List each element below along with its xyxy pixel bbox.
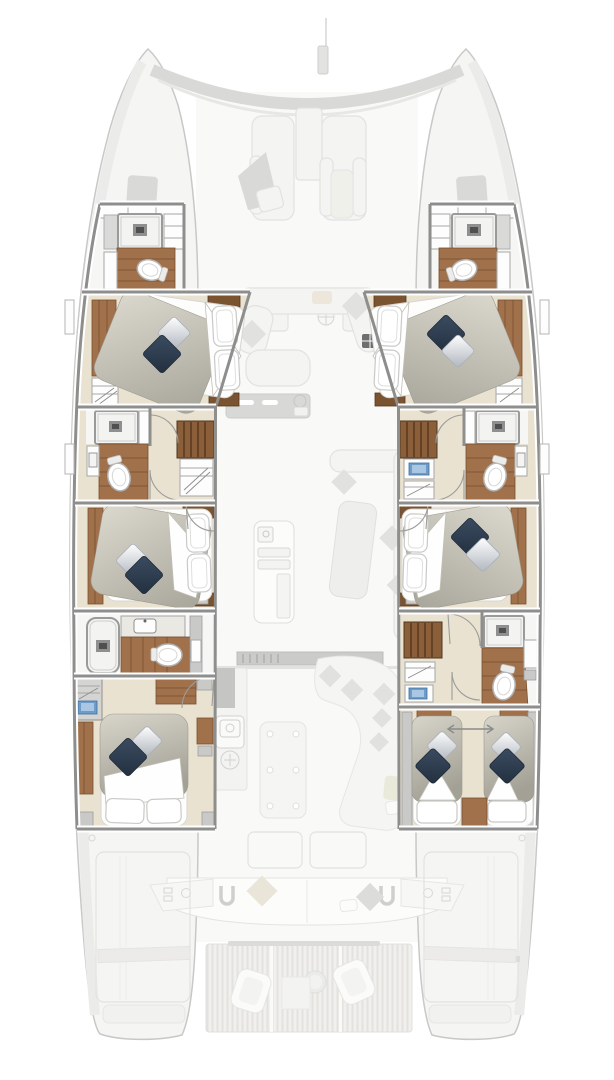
sun-lounger-starboard [320, 116, 366, 220]
center-step [462, 798, 487, 826]
cabinet [139, 411, 150, 444]
floorplan-canvas [0, 0, 614, 1080]
hull-window [65, 300, 74, 334]
hanging-locker [180, 459, 213, 496]
hull-window [540, 444, 549, 474]
double-bed [401, 501, 525, 611]
shower [484, 616, 524, 648]
twin-bed-right [484, 716, 534, 826]
sink-console [405, 685, 433, 702]
swim-platform-ghost [206, 941, 412, 1032]
cabinet [464, 411, 475, 444]
port-aft-head [87, 616, 202, 674]
stairs [177, 421, 214, 458]
cabinet [164, 214, 183, 249]
sink [87, 446, 99, 476]
stbd-mid-companionway [400, 421, 437, 499]
forestay-fitting [318, 46, 328, 74]
wardrobe [156, 678, 196, 704]
cabinet [497, 252, 510, 289]
bathtub-shower [87, 618, 119, 673]
transom-step [98, 946, 190, 962]
hanging-locker [404, 481, 434, 499]
twin-bed-left [412, 716, 462, 826]
shower [118, 214, 162, 249]
foredeck-hatch [296, 108, 322, 180]
port-companionway [177, 421, 214, 496]
cabinet [197, 718, 213, 744]
port-forward-cabin [90, 287, 246, 418]
shower [476, 411, 519, 444]
cockpit-table [260, 722, 306, 818]
salon-chaise [246, 350, 310, 386]
vanity [104, 215, 118, 249]
shower [95, 411, 138, 444]
wardrobe [77, 722, 93, 794]
stairs [400, 421, 437, 458]
stbd-mid-cabin [400, 501, 526, 611]
hull-window [540, 300, 549, 334]
sink [515, 446, 527, 476]
cabinet [104, 252, 117, 289]
stairs [404, 622, 442, 658]
cabinet [431, 214, 450, 249]
sink-console [404, 459, 434, 479]
stbd-forward-cabin [368, 287, 524, 418]
hull-window [65, 444, 74, 474]
outdoor-galley [213, 668, 247, 790]
port-mid-cabin [88, 501, 214, 611]
galley-island [254, 521, 294, 623]
hanging-locker [405, 662, 435, 682]
platform-mat [282, 977, 310, 1009]
transom-step [424, 946, 516, 962]
shower [452, 214, 496, 249]
locker-with-screen [75, 678, 102, 720]
vanity-sink [121, 616, 185, 637]
double-bed [100, 714, 188, 826]
cabinet [524, 640, 537, 668]
vanity [496, 215, 510, 249]
double-bed [89, 501, 213, 611]
yacht-floorplan [0, 0, 614, 1080]
